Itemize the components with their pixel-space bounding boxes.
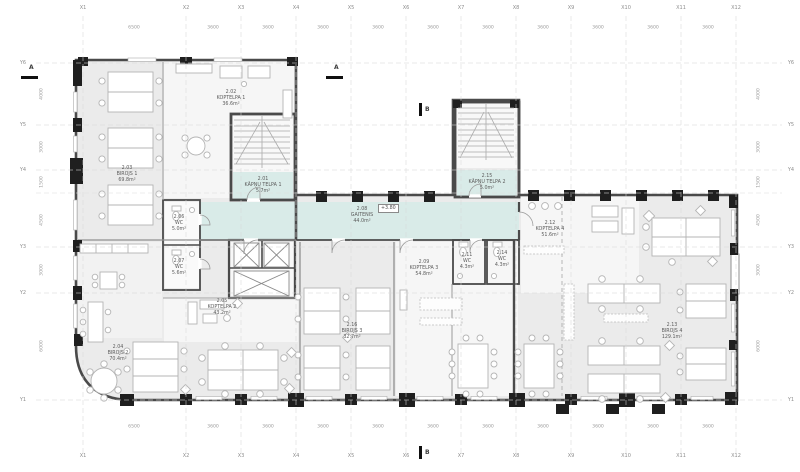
grid-label-bottom-x1: X1 bbox=[80, 453, 87, 459]
grid-label-right-y4: Y4 bbox=[788, 167, 794, 173]
grid-label-top-x2: X2 bbox=[183, 5, 190, 11]
dimension-right-5: 6000 bbox=[757, 340, 762, 352]
grid-label-top-x1: X1 bbox=[80, 5, 87, 11]
grid-label-bottom-x6: X6 bbox=[403, 453, 410, 459]
dimension-top-1: 3600 bbox=[207, 26, 219, 31]
dimension-top-6: 3600 bbox=[482, 26, 494, 31]
dimension-bottom-1: 3600 bbox=[207, 425, 219, 430]
dimension-top-0: 6500 bbox=[128, 26, 140, 31]
dimension-left-1: 3000 bbox=[40, 141, 45, 153]
grid-label-left-y4: Y4 bbox=[20, 167, 26, 173]
dimension-right-0: 4000 bbox=[757, 88, 762, 100]
elevation-marker: +3.80 bbox=[378, 204, 399, 213]
grid-label-left-y3: Y3 bbox=[20, 244, 26, 250]
dimension-right-4: 3000 bbox=[757, 264, 762, 276]
section-marker-b-top-bar bbox=[419, 103, 422, 116]
dimension-top-3: 3600 bbox=[317, 26, 329, 31]
dimension-bottom-4: 3600 bbox=[372, 425, 384, 430]
dimension-left-5: 6000 bbox=[40, 340, 45, 352]
grid-label-top-x12: X12 bbox=[731, 5, 741, 11]
dimension-bottom-2: 3600 bbox=[262, 425, 274, 430]
dimension-top-4: 3600 bbox=[372, 26, 384, 31]
dimension-bottom-10: 3600 bbox=[702, 425, 714, 430]
grid-label-bottom-x7: X7 bbox=[458, 453, 465, 459]
section-marker-a-right: A bbox=[334, 64, 339, 71]
grid-label-top-x5: X5 bbox=[348, 5, 355, 11]
dimension-bottom-5: 3600 bbox=[427, 425, 439, 430]
grid-label-top-x4: X4 bbox=[293, 5, 300, 11]
grid-label-bottom-x4: X4 bbox=[293, 453, 300, 459]
grid-label-right-y1: Y1 bbox=[788, 397, 794, 403]
grid-label-bottom-x10: X10 bbox=[621, 453, 631, 459]
section-marker-a-left: A bbox=[29, 64, 34, 71]
dimension-left-3: 4500 bbox=[40, 214, 45, 226]
dimension-top-2: 3600 bbox=[262, 26, 274, 31]
grid-layer bbox=[0, 0, 800, 472]
section-marker-b-bottom: B bbox=[425, 449, 430, 456]
dimension-right-3: 4500 bbox=[757, 214, 762, 226]
grid-label-left-y6: Y6 bbox=[20, 60, 26, 66]
grid-label-bottom-x12: X12 bbox=[731, 453, 741, 459]
dimension-bottom-8: 3600 bbox=[592, 425, 604, 430]
section-marker-b-top: B bbox=[425, 106, 430, 113]
dimension-bottom-0: 6500 bbox=[128, 425, 140, 430]
grid-label-top-x9: X9 bbox=[568, 5, 575, 11]
grid-label-top-x7: X7 bbox=[458, 5, 465, 11]
dimension-bottom-3: 3600 bbox=[317, 425, 329, 430]
grid-label-top-x11: X11 bbox=[676, 5, 686, 11]
floor-plan-canvas: X1X1X2X2X3X3X4X4X5X5X6X6X7X7X8X8X9X9X10X… bbox=[0, 0, 800, 472]
grid-label-bottom-x5: X5 bbox=[348, 453, 355, 459]
grid-label-top-x6: X6 bbox=[403, 5, 410, 11]
section-marker-a-left-bar bbox=[21, 76, 38, 79]
section-marker-b-bottom-bar bbox=[419, 446, 422, 459]
grid-label-top-x8: X8 bbox=[513, 5, 520, 11]
grid-label-right-y3: Y3 bbox=[788, 244, 794, 250]
dimension-top-8: 3600 bbox=[592, 26, 604, 31]
dimension-right-1: 3000 bbox=[757, 141, 762, 153]
grid-label-left-y1: Y1 bbox=[20, 397, 26, 403]
grid-label-left-y5: Y5 bbox=[20, 122, 26, 128]
grid-label-top-x3: X3 bbox=[238, 5, 245, 11]
dimension-top-9: 3600 bbox=[647, 26, 659, 31]
dimension-bottom-9: 3600 bbox=[647, 425, 659, 430]
grid-label-right-y2: Y2 bbox=[788, 290, 794, 296]
dimension-right-2: 1500 bbox=[757, 176, 762, 188]
grid-label-bottom-x2: X2 bbox=[183, 453, 190, 459]
dimension-bottom-7: 3600 bbox=[537, 425, 549, 430]
grid-label-bottom-x8: X8 bbox=[513, 453, 520, 459]
grid-label-left-y2: Y2 bbox=[20, 290, 26, 296]
dimension-left-4: 3000 bbox=[40, 264, 45, 276]
dimension-top-7: 3600 bbox=[537, 26, 549, 31]
section-marker-a-right-bar bbox=[326, 76, 343, 79]
grid-label-top-x10: X10 bbox=[621, 5, 631, 11]
dimension-top-10: 3600 bbox=[702, 26, 714, 31]
dimension-left-0: 4000 bbox=[40, 88, 45, 100]
grid-label-bottom-x3: X3 bbox=[238, 453, 245, 459]
grid-label-bottom-x11: X11 bbox=[676, 453, 686, 459]
grid-label-bottom-x9: X9 bbox=[568, 453, 575, 459]
grid-label-right-y6: Y6 bbox=[788, 60, 794, 66]
dimension-top-5: 3600 bbox=[427, 26, 439, 31]
dimension-left-2: 1500 bbox=[40, 176, 45, 188]
grid-label-right-y5: Y5 bbox=[788, 122, 794, 128]
dimension-bottom-6: 3600 bbox=[482, 425, 494, 430]
